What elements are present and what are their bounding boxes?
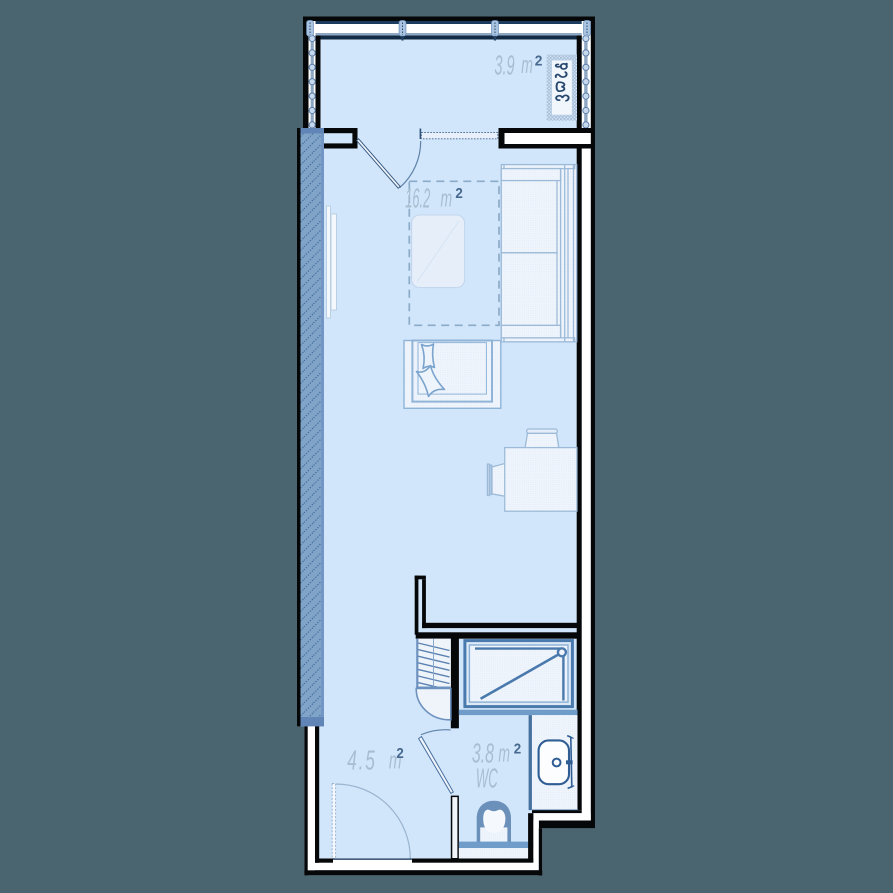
svg-text:2: 2 (455, 184, 463, 201)
svg-text:WC: WC (476, 762, 498, 794)
svg-text:m: m (441, 186, 453, 213)
svg-text:3.9: 3.9 (494, 50, 514, 81)
svg-text:16.2: 16.2 (405, 183, 430, 214)
svg-text:2: 2 (396, 745, 404, 762)
svg-text:2: 2 (514, 740, 522, 757)
svg-text:2: 2 (535, 53, 543, 70)
svg-text:4.5: 4.5 (347, 744, 377, 775)
svg-text:m: m (498, 741, 510, 768)
svg-text:m: m (521, 52, 533, 79)
